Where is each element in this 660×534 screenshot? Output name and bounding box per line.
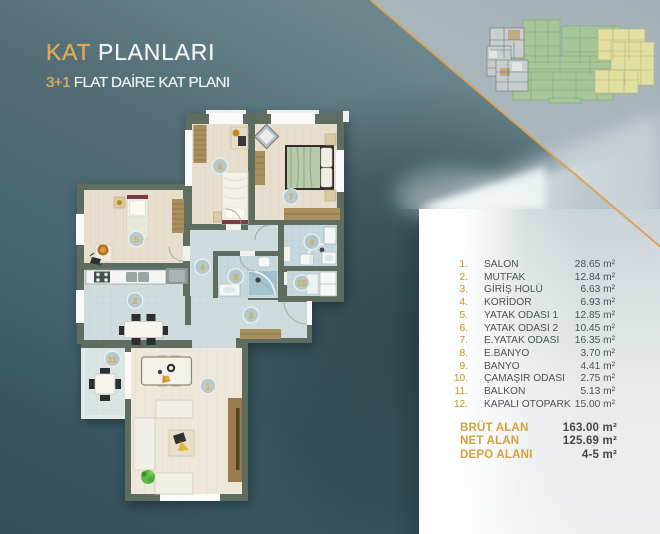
svg-text:5: 5 [134,235,139,245]
svg-text:11: 11 [108,355,117,365]
svg-text:6: 6 [218,162,223,172]
svg-text:4: 4 [200,263,205,273]
svg-text:8: 8 [309,237,314,247]
svg-text:9: 9 [233,272,238,282]
svg-text:3: 3 [249,311,254,321]
svg-text:2: 2 [133,296,138,306]
svg-text:7: 7 [289,192,294,202]
svg-text:1: 1 [206,382,211,392]
svg-text:10: 10 [297,278,307,288]
